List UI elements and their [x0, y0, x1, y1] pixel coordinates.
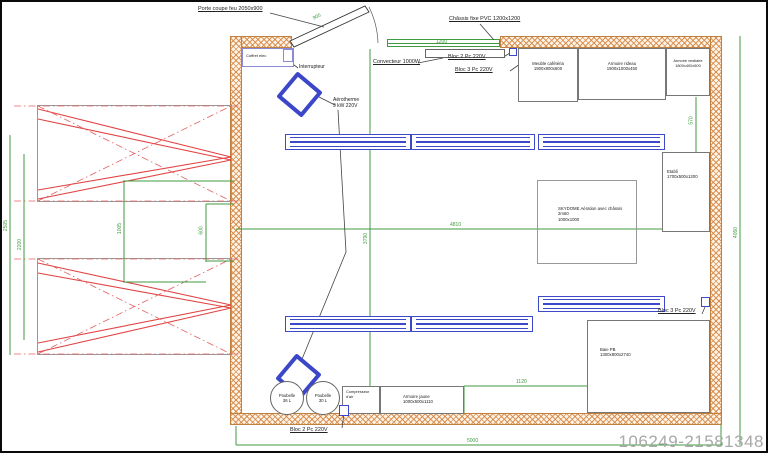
aerotherme-unit-1: [276, 71, 322, 117]
watermark-text: 106249-21581348: [618, 432, 764, 452]
label-porte-coupe-feu: Porte coupe feu 2050x900: [198, 6, 263, 13]
interrupteur-switch: [283, 49, 293, 62]
poubelle-1-label: Poubelle 36 L: [279, 393, 295, 404]
cabinet-baie-pb: Baie PB 1300x800x2740: [587, 320, 710, 413]
bin-size: 30 L: [315, 398, 331, 403]
cabinet-size: 1300x800x2740: [600, 352, 631, 357]
label-convecteur: Convecteur 1000W: [373, 59, 420, 66]
skydome-outline: SKYDOME Aération avec châssis 2m60 1000x…: [537, 180, 637, 264]
label-coffret: Coffret elec: [246, 53, 266, 58]
floor-plan-canvas: 1200: [0, 0, 768, 453]
poubelle-2-label: Poubelle 30 L: [315, 393, 331, 404]
cabinet-size: 1900x900x600: [521, 66, 575, 71]
dim-interior-depth: 3790: [364, 232, 369, 245]
outlet-bloc3-mid: [701, 297, 710, 307]
compresseur-line2: d'air: [346, 395, 369, 400]
dim-overall-depth: 4050: [734, 226, 739, 239]
label-bloc3-mid: Bloc 3 Pc 220V: [658, 308, 696, 315]
dim-door-width: 900: [311, 13, 322, 22]
bench-row1-seg1: [285, 134, 411, 150]
cabinet-meuble-cafeteria-label: Meuble cafétéria 1900x900x600: [521, 61, 575, 72]
dim-right-top: 570: [690, 115, 695, 125]
dim-bottom-right: 1120: [515, 380, 528, 385]
cabinet-armoire-rideau-label: Armoire rideau 1900x1000x450: [581, 61, 663, 72]
outlet-bloc2-bottom: [339, 405, 349, 416]
cabinet-armoire-vestiaire-label: Armoire vestiaire 1800x400x500: [668, 59, 708, 69]
cabinet-baie-pb-label: Baie PB 1300x800x2740: [600, 347, 631, 358]
cabinet-size: 1900x1000x450: [581, 66, 663, 71]
label-aerotherme: Aérotherme 9 kW 220V: [333, 97, 359, 110]
cabinet-size: 1800x400x500: [668, 64, 708, 69]
wall-bottom: [230, 413, 722, 425]
dim-left-mid: 1005: [118, 222, 123, 235]
dim-overall-width: 5000: [466, 439, 479, 444]
poubelle-1: Poubelle 36 L: [270, 381, 304, 415]
dim-interior-width: 4810: [449, 223, 462, 228]
cabinet-armoire-rideau: Armoire rideau 1900x1000x450: [578, 48, 666, 100]
label-bloc2-top: Bloc 2 Pc 220V: [448, 54, 486, 61]
left-structure-band-top: [37, 105, 232, 202]
dim-left-outer: 2505: [4, 219, 9, 232]
cabinet-etabli-label: Etabli 1700x500x1200: [667, 169, 698, 180]
skydome-line3: 1000x1000: [558, 217, 622, 222]
cabinet-armoire-vestiaire: Armoire vestiaire 1800x400x500: [666, 48, 710, 96]
fire-door: [290, 6, 378, 47]
label-chassis-fixe: Châssis fixe PVC 1200x1200: [449, 16, 520, 23]
left-structure-band-bottom: [37, 258, 232, 355]
label-aerotherme-line2: 9 kW 220V: [333, 103, 359, 109]
dim-left-small: 600: [200, 225, 205, 235]
wall-top-right: [500, 36, 722, 48]
cabinet-size: 1000x500x1110: [403, 399, 433, 404]
compresseur-label: Compresseur d'air: [346, 390, 369, 400]
label-bloc2-bottom: Bloc 2 Pc 220V: [290, 427, 328, 434]
cabinet-etabli: Etabli 1700x500x1200: [662, 152, 710, 232]
poubelle-2: Poubelle 30 L: [306, 381, 340, 415]
wall-right: [710, 36, 722, 425]
dim-window-width: 1200: [435, 40, 448, 45]
cabinet-size: 1700x500x1200: [667, 174, 698, 179]
skydome-label: SKYDOME Aération avec châssis 2m60 1000x…: [558, 206, 622, 222]
cabinet-armoire-jaune-label: Armoire jaune 1000x500x1110: [403, 394, 433, 405]
label-interrupteur: Interrupteur: [299, 64, 325, 70]
cabinet-armoire-jaune: Armoire jaune 1000x500x1110: [380, 386, 464, 414]
bench-row1-seg3: [538, 134, 665, 150]
cabinet-meuble-cafeteria: Meuble cafétéria 1900x900x600: [518, 48, 578, 102]
bench-row2-left1: [285, 316, 411, 332]
wall-left: [230, 36, 242, 425]
label-bloc3-top: Bloc 3 Pc 220V: [455, 67, 493, 74]
bench-row2-left2: [411, 316, 533, 332]
dim-left-inner: 2200: [18, 238, 23, 251]
bin-size: 36 L: [279, 398, 295, 403]
bench-row2-right: [538, 296, 665, 312]
bench-row1-seg2: [411, 134, 535, 150]
outlet-bloc2-top: [509, 48, 517, 56]
